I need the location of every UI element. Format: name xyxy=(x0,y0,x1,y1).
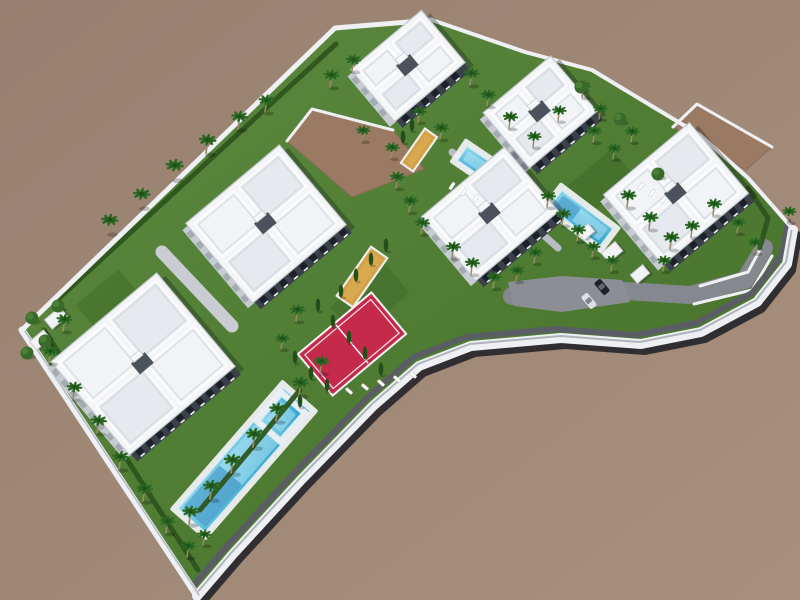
aerial-render xyxy=(0,0,800,600)
architectural-render-stage xyxy=(0,0,800,600)
